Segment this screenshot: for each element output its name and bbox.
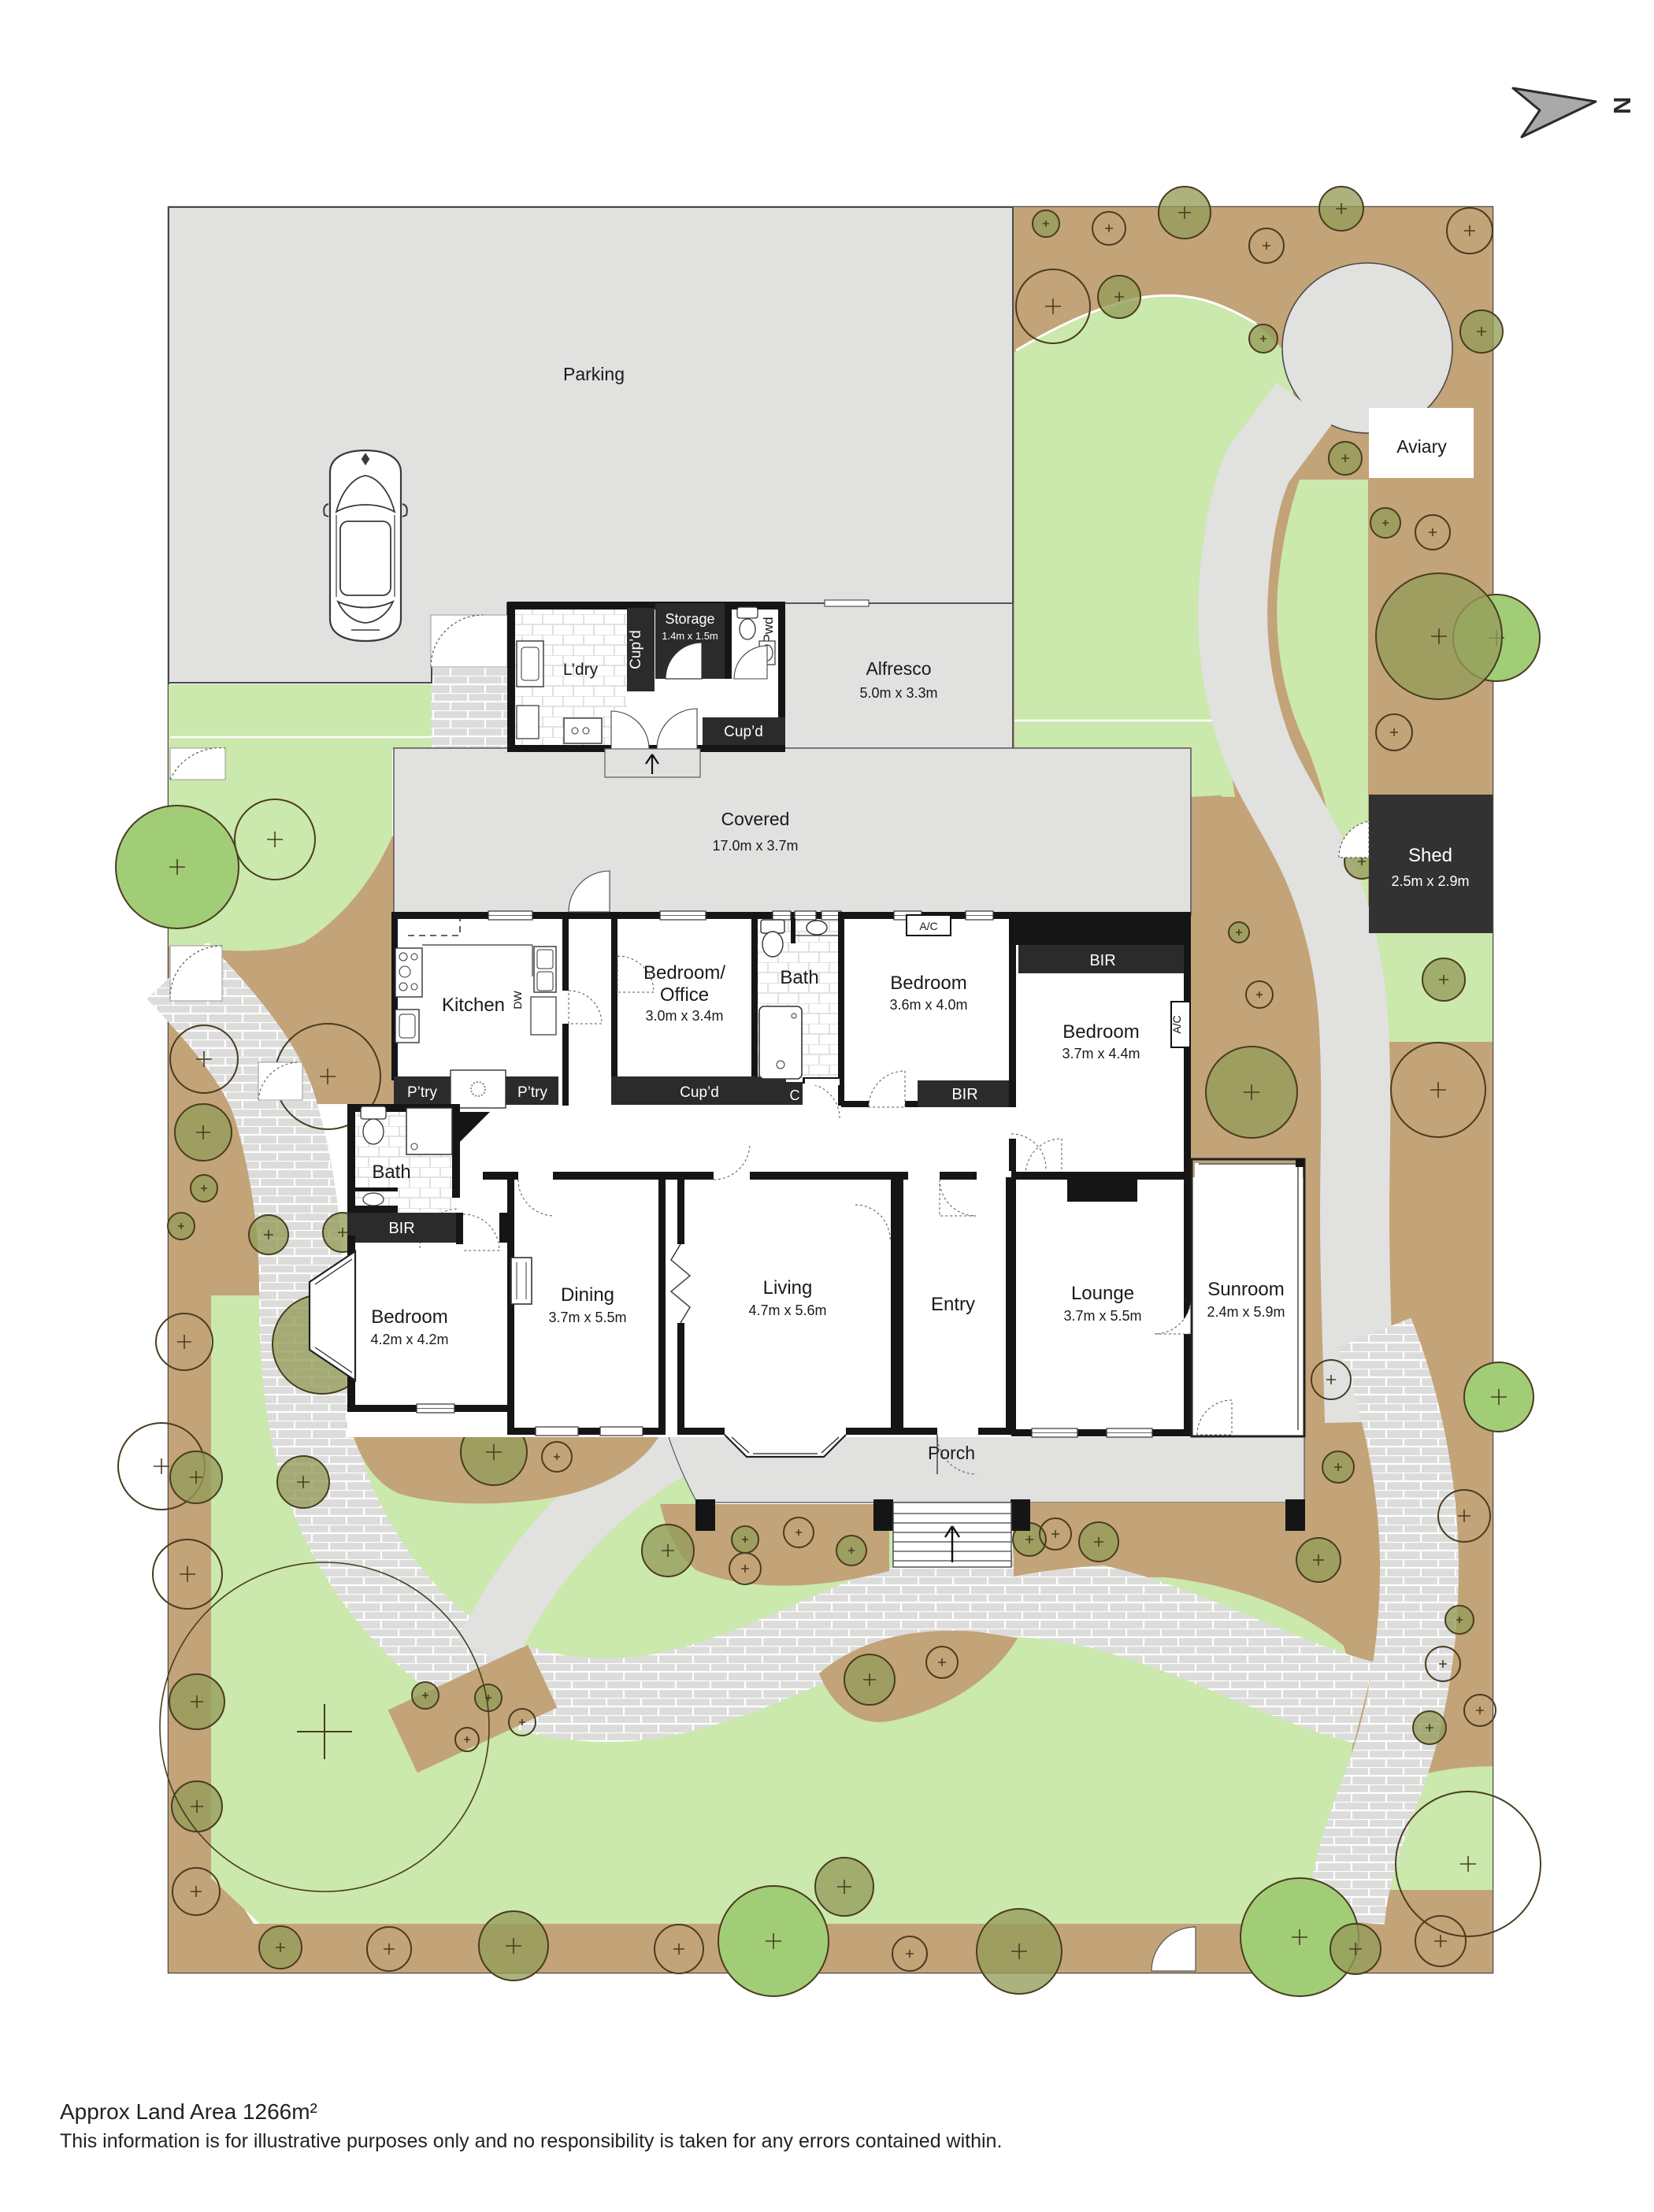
svg-text:Lounge: Lounge [1071,1283,1134,1304]
svg-text:Bedroom/: Bedroom/ [643,962,725,984]
svg-text:Kitchen: Kitchen [442,995,505,1016]
svg-text:Bedroom: Bedroom [890,973,966,994]
svg-text:3.7m x 5.5m: 3.7m x 5.5m [548,1310,626,1325]
svg-text:5.0m x 3.3m: 5.0m x 3.3m [859,685,937,701]
svg-text:BIR: BIR [951,1086,977,1103]
svg-text:P’try: P’try [407,1084,438,1101]
svg-text:Dining: Dining [561,1284,614,1306]
svg-text:Sunroom: Sunroom [1207,1279,1284,1300]
svg-text:3.6m x 4.0m: 3.6m x 4.0m [889,997,967,1013]
svg-text:Cup’d: Cup’d [680,1084,719,1101]
svg-text:A/C: A/C [919,920,937,932]
svg-text:Parking: Parking [563,364,625,384]
svg-text:3.0m x 3.4m: 3.0m x 3.4m [645,1008,723,1024]
svg-text:Covered: Covered [721,809,790,829]
svg-text:3.7m x 5.5m: 3.7m x 5.5m [1063,1308,1141,1324]
svg-text:C: C [790,1087,800,1103]
svg-text:2.4m x 5.9m: 2.4m x 5.9m [1207,1304,1285,1320]
svg-text:2.5m x 2.9m: 2.5m x 2.9m [1391,873,1469,889]
svg-text:Pwd: Pwd [761,617,776,643]
svg-text:DW: DW [511,991,524,1010]
svg-text:Alfresco: Alfresco [866,658,931,679]
svg-text:This information is for illust: This information is for illustrative pur… [60,2130,1002,2152]
svg-text:Shed: Shed [1408,845,1452,866]
svg-text:Office: Office [660,984,709,1006]
svg-text:Living: Living [763,1277,813,1299]
svg-text:4.7m x 5.6m: 4.7m x 5.6m [748,1302,826,1318]
svg-text:L’dry: L’dry [563,661,599,679]
svg-text:Entry: Entry [931,1294,975,1315]
svg-text:Bedroom: Bedroom [1062,1021,1139,1043]
svg-text:N: N [1608,97,1636,114]
svg-text:BIR: BIR [388,1220,414,1237]
svg-text:Bath: Bath [372,1162,410,1183]
svg-text:Bedroom: Bedroom [371,1306,447,1328]
svg-text:1.4m x 1.5m: 1.4m x 1.5m [662,630,718,642]
svg-text:Cup’d: Cup’d [724,724,763,740]
svg-text:Approx Land Area 1266m²: Approx Land Area 1266m² [60,2099,317,2124]
svg-text:Porch: Porch [928,1443,975,1463]
svg-text:Aviary: Aviary [1396,436,1447,457]
svg-text:P’try: P’try [517,1084,548,1101]
svg-text:Storage: Storage [665,611,714,627]
svg-text:Bath: Bath [780,967,818,988]
svg-text:A/C: A/C [1170,1015,1183,1033]
svg-text:BIR: BIR [1089,952,1115,969]
svg-text:Cup’d: Cup’d [628,630,644,669]
svg-text:17.0m x 3.7m: 17.0m x 3.7m [712,838,798,854]
svg-text:4.2m x 4.2m: 4.2m x 4.2m [370,1332,448,1347]
svg-text:3.7m x 4.4m: 3.7m x 4.4m [1062,1046,1140,1062]
